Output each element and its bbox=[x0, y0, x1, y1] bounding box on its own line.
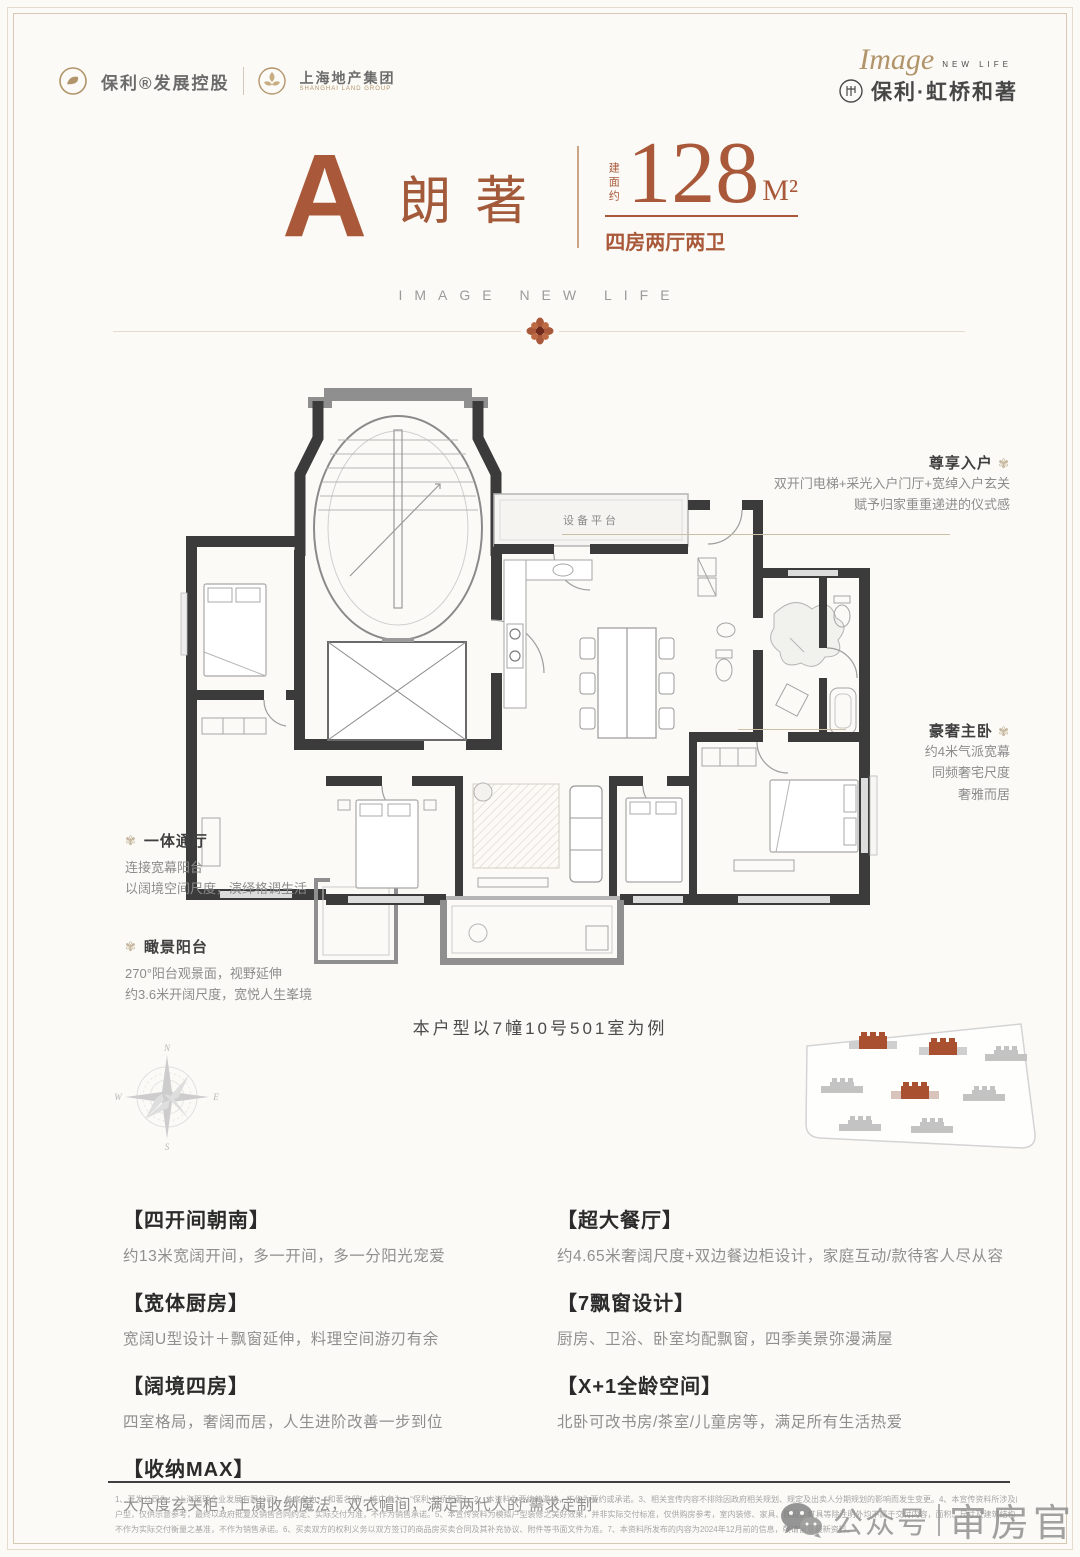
feature-item: 【阔境四房】 四室格局，奢阔而居，人生进阶改善一步到位 bbox=[123, 1370, 593, 1432]
watermark: 公众号 审房官 bbox=[778, 1492, 1075, 1547]
callout-master: 豪奢主卧 ✾ 约4米气派宽幕 同频奢宅尺度 奢雅而居 bbox=[850, 720, 1010, 805]
brand-shanghai-land-en: SHANGHAI LAND GROUP bbox=[300, 86, 396, 93]
compass-south-label: S bbox=[165, 1142, 170, 1152]
entry-leader-line bbox=[562, 534, 950, 535]
feature-title: 【超大餐厅】 bbox=[557, 1204, 1027, 1233]
elevator-shaft bbox=[328, 638, 466, 740]
watermark-channel: 公众号 bbox=[833, 1498, 929, 1542]
callout-hall-title: 一体通厅 bbox=[144, 830, 208, 851]
equipment-platform: 设备平台 bbox=[494, 494, 688, 546]
stair-tower bbox=[300, 388, 496, 640]
wechat-icon bbox=[778, 1500, 824, 1540]
project-name: 保利·虹桥和著 bbox=[871, 76, 1018, 106]
callout-master-line3: 奢雅而居 bbox=[850, 784, 1010, 805]
room-spec: 四房两厅两卫 bbox=[605, 226, 798, 255]
feature-item: 【四开间朝南】 约13米宽阔开间，多一开间，多一分阳光宠爱 bbox=[123, 1204, 593, 1266]
callout-master-line2: 同频奢宅尺度 bbox=[850, 762, 1010, 783]
shanghai-land-icon bbox=[257, 66, 287, 96]
south-balcony bbox=[440, 896, 624, 965]
callout-balcony: ✾ 瞰景阳台 270°阳台观景面，视野延伸 约3.6米开阔尺度，宽悦人生峯境 bbox=[125, 936, 445, 1006]
unit-name: 朗著 bbox=[393, 159, 551, 234]
feature-item: 【X+1全龄空间】 北卧可改书房/茶室/儿童房等，满足所有生活热爱 bbox=[557, 1370, 1027, 1432]
feature-item: 【超大餐厅】 约4.65米奢阔尺度+双边餐边柜设计，家庭互动/款待客人尽从容 bbox=[557, 1204, 1027, 1266]
flower-bullet-icon: ✾ bbox=[998, 724, 1010, 739]
callout-balcony-line2: 约3.6米开阔尺度，宽悦人生峯境 bbox=[125, 984, 445, 1005]
area-value: 128 bbox=[627, 138, 759, 210]
callout-balcony-title: 瞰景阳台 bbox=[144, 936, 208, 957]
header-divider bbox=[243, 67, 244, 95]
master-leader-line bbox=[738, 729, 846, 730]
area-label: 建面约 bbox=[605, 162, 621, 204]
header-left: 保利®发展控股 上海地产集团 SHANGHAI LAND GROUP bbox=[58, 66, 396, 96]
callout-hall-line2: 以阔境空间尺度，演绎格调生活 bbox=[125, 878, 445, 899]
feature-title: 【四开间朝南】 bbox=[123, 1204, 593, 1233]
feature-title: 【阔境四房】 bbox=[123, 1370, 593, 1399]
bathroom bbox=[819, 578, 857, 740]
poster-page: 保利®发展控股 上海地产集团 SHANGHAI LAND GROUP Image… bbox=[0, 0, 1080, 1557]
title-block: A 朗著 建面约 128 M² 四房两厅两卫 bbox=[0, 138, 1080, 255]
feature-desc: 北卧可改书房/茶室/儿童房等，满足所有生活热爱 bbox=[557, 1410, 1027, 1432]
features-right-column: 【超大餐厅】 约4.65米奢阔尺度+双边餐边柜设计，家庭互动/款待客人尽从容 【… bbox=[557, 1204, 1027, 1453]
callout-entry: 尊享入户 ✾ 双开门电梯+采光入户门厅+宽绰入户玄关 赋予归家重重递进的仪式感 bbox=[670, 452, 1010, 516]
feature-title: 【X+1全龄空间】 bbox=[557, 1370, 1027, 1399]
slogan: IMAGE NEW LIFE bbox=[0, 287, 1080, 303]
callout-balcony-line1: 270°阳台观景面，视野延伸 bbox=[125, 963, 445, 984]
project-seal-icon bbox=[838, 78, 864, 104]
divider-flower-icon bbox=[521, 312, 559, 350]
compass-north-label: N bbox=[163, 1043, 171, 1053]
title-divider bbox=[577, 146, 579, 248]
image-script-logo: Image bbox=[859, 48, 934, 72]
feature-desc: 约4.65米奢阔尺度+双边餐边柜设计，家庭互动/款待客人尽从容 bbox=[557, 1244, 1027, 1266]
callout-master-line1: 约4米气派宽幕 bbox=[850, 741, 1010, 762]
entry-foyer bbox=[688, 500, 763, 742]
callout-master-title: 豪奢主卧 bbox=[929, 723, 993, 740]
feature-title: 【宽体厨房】 bbox=[123, 1287, 593, 1316]
feature-item: 【宽体厨房】 宽阔U型设计＋飘窗延伸，料理空间游刃有余 bbox=[123, 1287, 593, 1349]
callout-entry-line2: 赋予归家重重递进的仪式感 bbox=[670, 494, 1010, 515]
callout-entry-line1: 双开门电梯+采光入户门厅+宽绰入户玄关 bbox=[670, 473, 1010, 494]
feature-desc: 宽阔U型设计＋飘窗延伸，料理空间游刃有余 bbox=[123, 1327, 593, 1349]
new-life-tagline: NEW LIFE bbox=[942, 60, 1012, 72]
compass-west-label: W bbox=[114, 1092, 123, 1102]
south-bedroom bbox=[609, 776, 698, 905]
header-right: Image NEW LIFE 保利·虹桥和著 bbox=[838, 48, 1018, 106]
compass-east-label: E bbox=[212, 1092, 219, 1102]
living-room bbox=[473, 783, 602, 887]
flower-bullet-icon: ✾ bbox=[125, 833, 136, 849]
area-unit: M² bbox=[762, 174, 798, 208]
footer-rule bbox=[108, 1481, 1010, 1483]
feature-desc: 厨房、卫浴、卧室均配飘窗，四季美景弥漫满屋 bbox=[557, 1327, 1027, 1349]
feature-item: 【7飘窗设计】 厨房、卫浴、卧室均配飘窗，四季美景弥漫满屋 bbox=[557, 1287, 1027, 1349]
feature-desc: 约13米宽阔开间，多一开间，多一分阳光宠爱 bbox=[123, 1244, 593, 1266]
study-room bbox=[758, 568, 870, 716]
callout-hall: ✾ 一体通厅 连接宽幕阳台 以阔境空间尺度，演绎格调生活 bbox=[125, 830, 445, 900]
watermark-name: 审房官 bbox=[949, 1492, 1075, 1547]
feature-title: 【7飘窗设计】 bbox=[557, 1287, 1027, 1316]
feature-title: 【收纳MAX】 bbox=[123, 1453, 593, 1482]
features-left-column: 【四开间朝南】 约13米宽阔开间，多一开间，多一分阳光宠爱 【宽体厨房】 宽阔U… bbox=[123, 1204, 593, 1536]
callout-entry-title: 尊享入户 bbox=[929, 455, 993, 472]
site-plan-map bbox=[793, 1018, 1048, 1183]
platform-label: 设备平台 bbox=[563, 513, 619, 527]
poly-logo-icon bbox=[58, 66, 88, 96]
brand-poly-development: 保利®发展控股 bbox=[101, 69, 230, 94]
callout-hall-line1: 连接宽幕阳台 bbox=[125, 857, 445, 878]
dining-area bbox=[580, 628, 674, 738]
watermark-separator bbox=[938, 1504, 940, 1536]
compass-icon: N E S W bbox=[112, 1042, 222, 1152]
flower-bullet-icon: ✾ bbox=[998, 456, 1010, 471]
unit-letter: A bbox=[282, 143, 367, 249]
brand-shanghai-land: 上海地产集团 bbox=[300, 70, 396, 86]
flower-bullet-icon: ✾ bbox=[125, 939, 136, 955]
feature-desc: 四室格局，奢阔而居，人生进阶改善一步到位 bbox=[123, 1410, 593, 1432]
